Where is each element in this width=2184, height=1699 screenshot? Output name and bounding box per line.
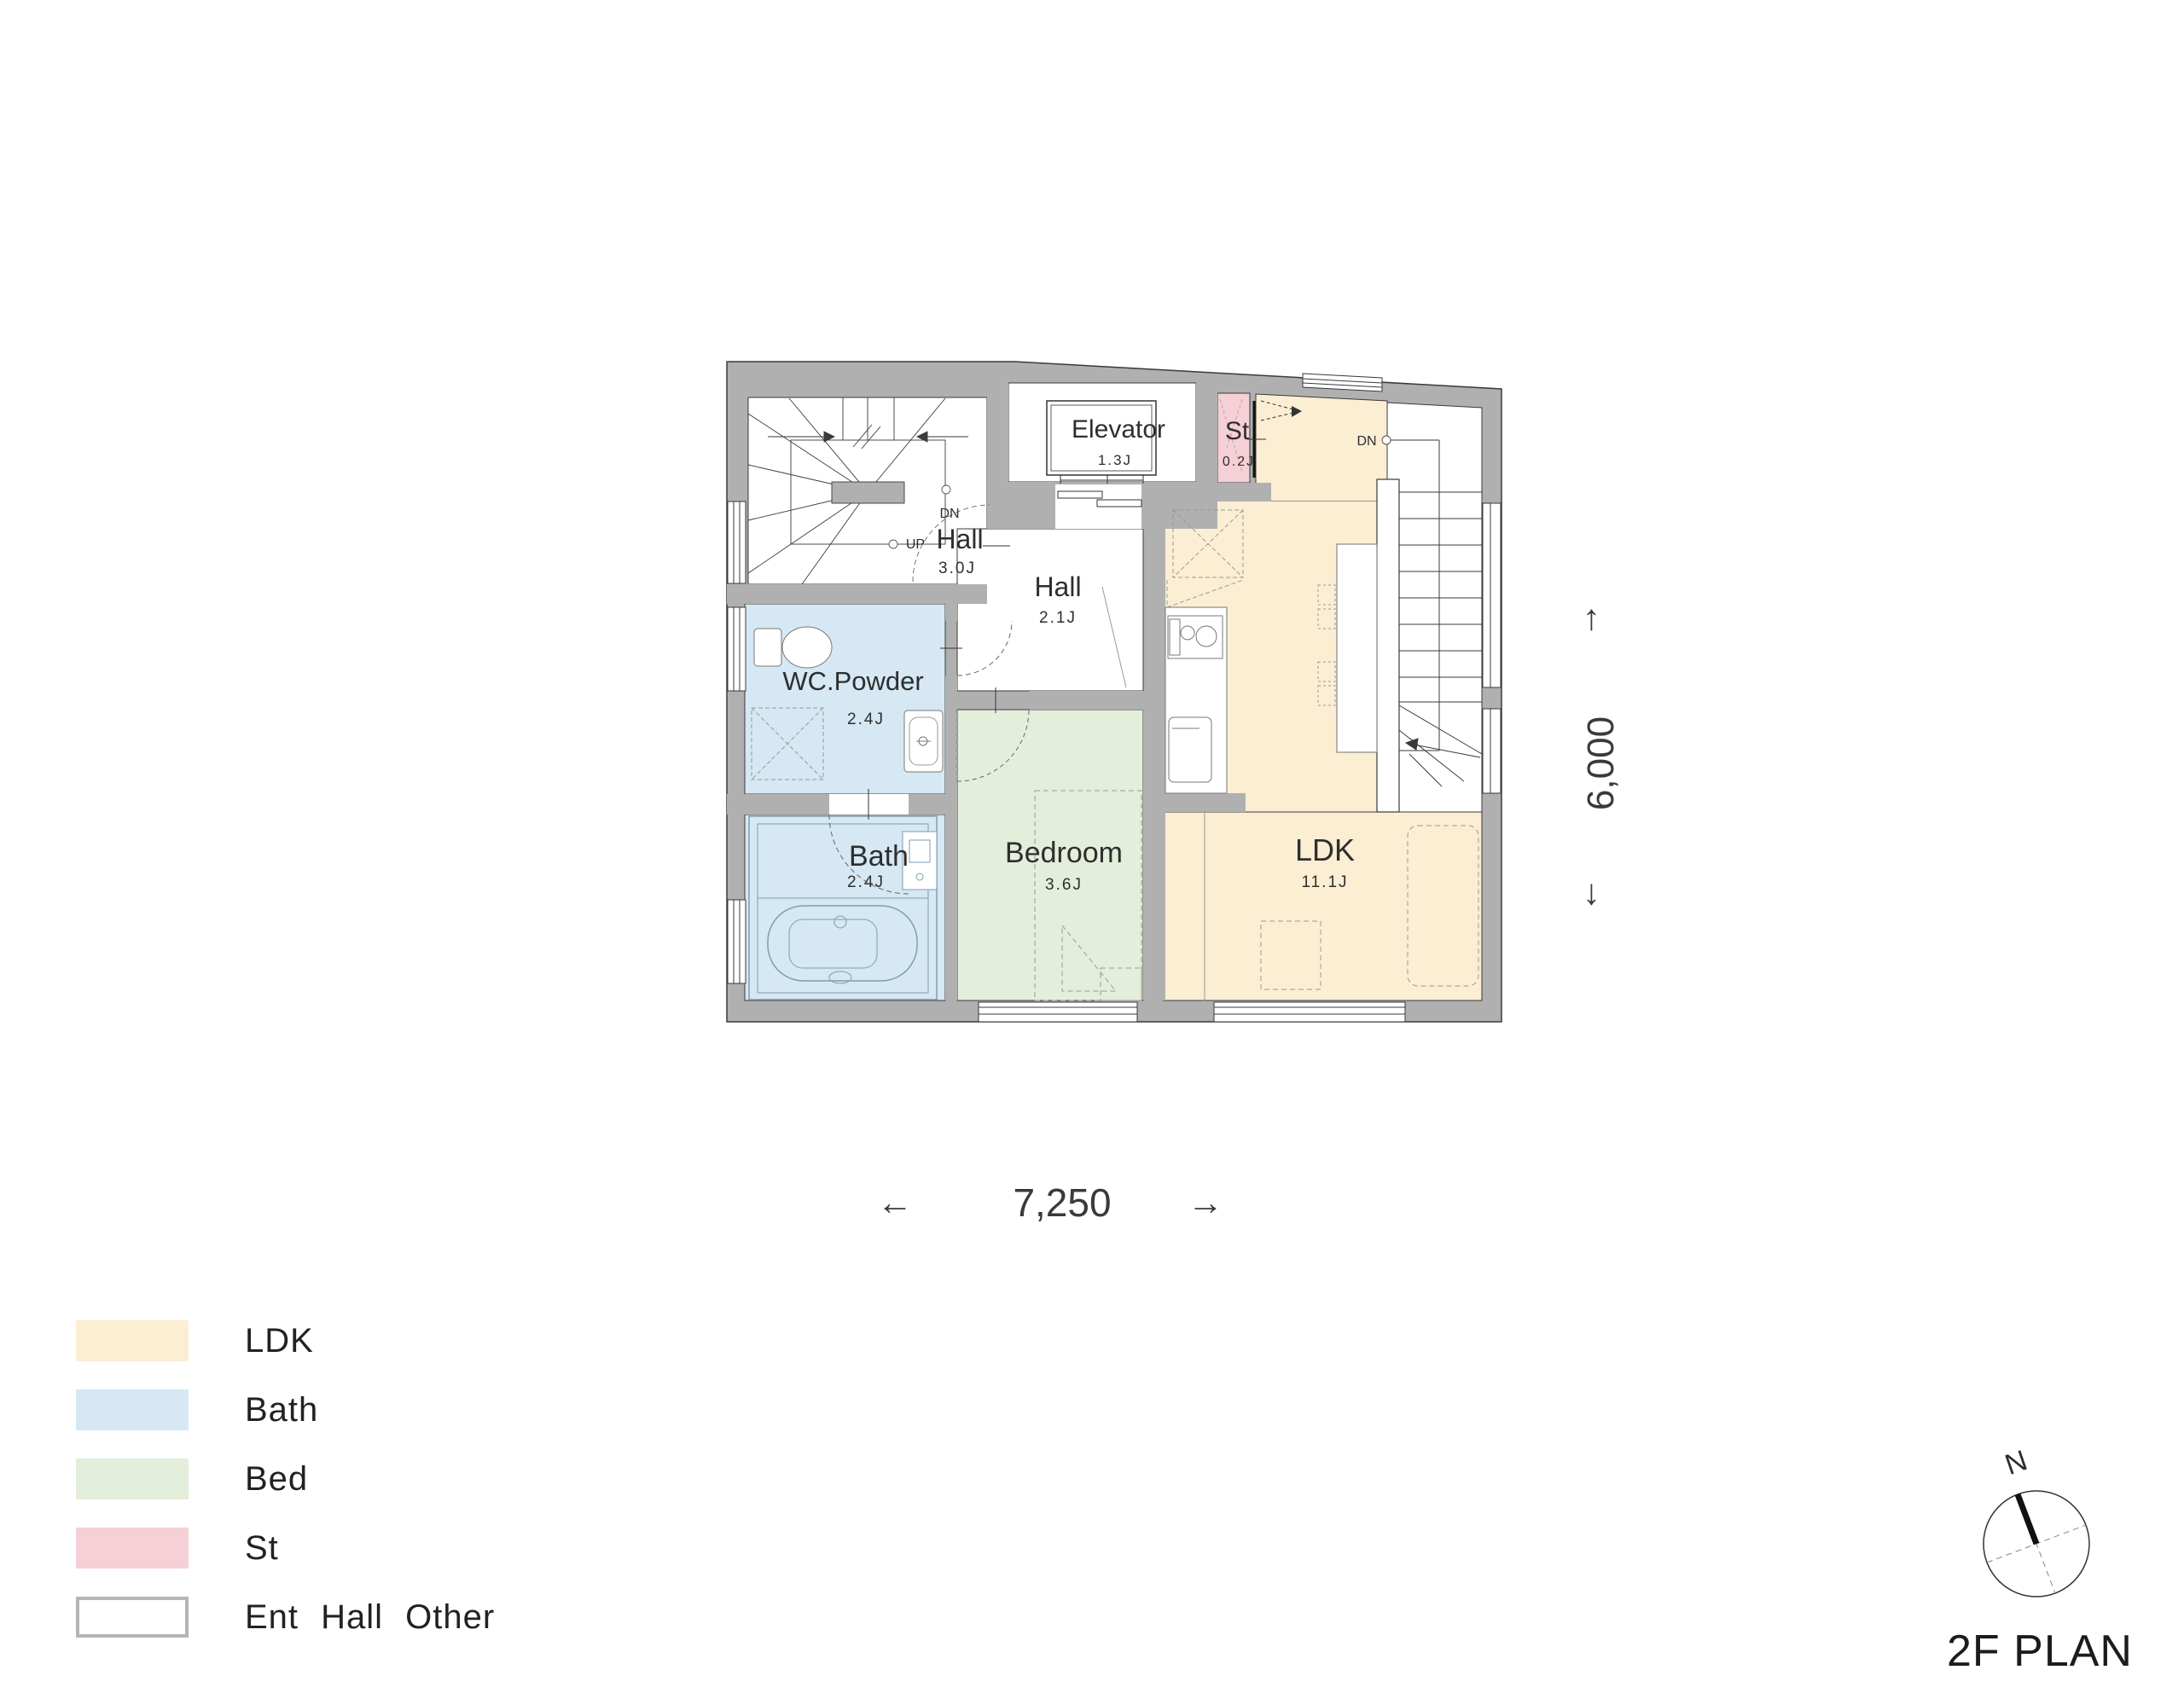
wall-shaft-right (1196, 380, 1217, 482)
legend-label-bath: Bath (245, 1391, 318, 1429)
st-label: St (1225, 417, 1250, 445)
compass: N (1971, 1438, 2107, 1609)
toilet-bowl (782, 627, 832, 668)
elevator-area: 1.3J (1098, 452, 1132, 468)
window-left-stair (728, 502, 746, 583)
refrigerator (1169, 717, 1211, 782)
st-area: 0.2J (1223, 455, 1255, 469)
stair-landing (832, 482, 904, 503)
elevator-label: Elevator (1072, 415, 1165, 444)
ldk-label: LDK (1295, 832, 1355, 867)
wc-label: WC.Powder (782, 666, 923, 696)
legend-swatch-bed (76, 1458, 189, 1499)
legend-label-bed: Bed (245, 1460, 308, 1499)
ldk-area: 11.1J (1301, 873, 1348, 891)
window-right-upper (1483, 503, 1501, 687)
window-left-bath (728, 900, 746, 983)
legend-row-bed: Bed (76, 1458, 308, 1499)
elevator-door-leaf (1058, 491, 1102, 498)
bedroom-area: 3.6J (1045, 876, 1083, 894)
hall-upper-label: Hall (936, 524, 983, 554)
bedroom-label: Bedroom (1005, 837, 1123, 869)
window-right-lower (1483, 709, 1501, 793)
width-arrow-right-icon: → (1188, 1182, 1223, 1223)
hall-lower-area: 2.1J (1039, 609, 1077, 627)
hall-upper-area: 3.0J (938, 560, 976, 577)
dn-right-text: DN (1356, 434, 1376, 449)
window-bottom-bedroom (979, 1002, 1137, 1022)
wall-wc-right-b (945, 676, 957, 1000)
bath-area: 2.4J (847, 873, 885, 891)
elevator-door-leaf (1097, 500, 1141, 507)
floor-plan: Elevator 1.3J St 0.2J Hall 3.0J Hall 2.1… (717, 348, 1527, 1041)
wall-stair-wc (727, 584, 987, 604)
legend-row-ldk: LDK (76, 1320, 314, 1361)
legend-row-other: Ent Hall Other (76, 1597, 495, 1638)
legend-row-st: St (76, 1528, 279, 1569)
wall-bedroom-top (1030, 691, 1143, 710)
bath-label: Bath (849, 840, 909, 873)
legend-label-st: St (245, 1529, 279, 1568)
legend-row-bath: Bath (76, 1389, 318, 1430)
height-arrow-up-icon: ↑ (1583, 597, 1600, 638)
window-left-wc (728, 607, 746, 691)
height-dimension: 6,000 (1537, 704, 1665, 823)
compass-north-label: N (2001, 1444, 2031, 1482)
wall-bedroom-right (1143, 691, 1165, 1000)
toilet-tank (754, 629, 781, 666)
legend-swatch-bath (76, 1389, 189, 1430)
wc-area: 2.4J (847, 710, 885, 728)
dn-text: DN (939, 507, 959, 521)
hall-lower-label: Hall (1034, 571, 1081, 602)
legend-swatch-st (76, 1528, 189, 1569)
island-counter (1337, 544, 1377, 752)
dn-marker-icon (1382, 436, 1391, 444)
width-arrow-left-icon: ← (877, 1182, 913, 1223)
stair-rail (1377, 479, 1399, 812)
wall-wc-right-a (945, 604, 957, 621)
plan-title: 2F PLAN (1925, 1626, 2155, 1677)
width-dimension: 7,250 (934, 1180, 1190, 1226)
legend-label-other: Ent Hall Other (245, 1598, 495, 1637)
stair-dn-marker-icon (942, 485, 950, 494)
height-arrow-down-icon: ↓ (1583, 872, 1600, 913)
window-bottom-ldk (1214, 1002, 1405, 1022)
legend-label-ldk: LDK (245, 1322, 314, 1360)
legend-swatch-other (76, 1597, 189, 1638)
compass-needle-icon (2018, 1494, 2036, 1544)
up-text: UP (906, 537, 925, 552)
page: Elevator 1.3J St 0.2J Hall 3.0J Hall 2.1… (0, 0, 2184, 1699)
legend-swatch-ldk (76, 1320, 189, 1361)
stair-up-marker-icon (889, 540, 897, 548)
